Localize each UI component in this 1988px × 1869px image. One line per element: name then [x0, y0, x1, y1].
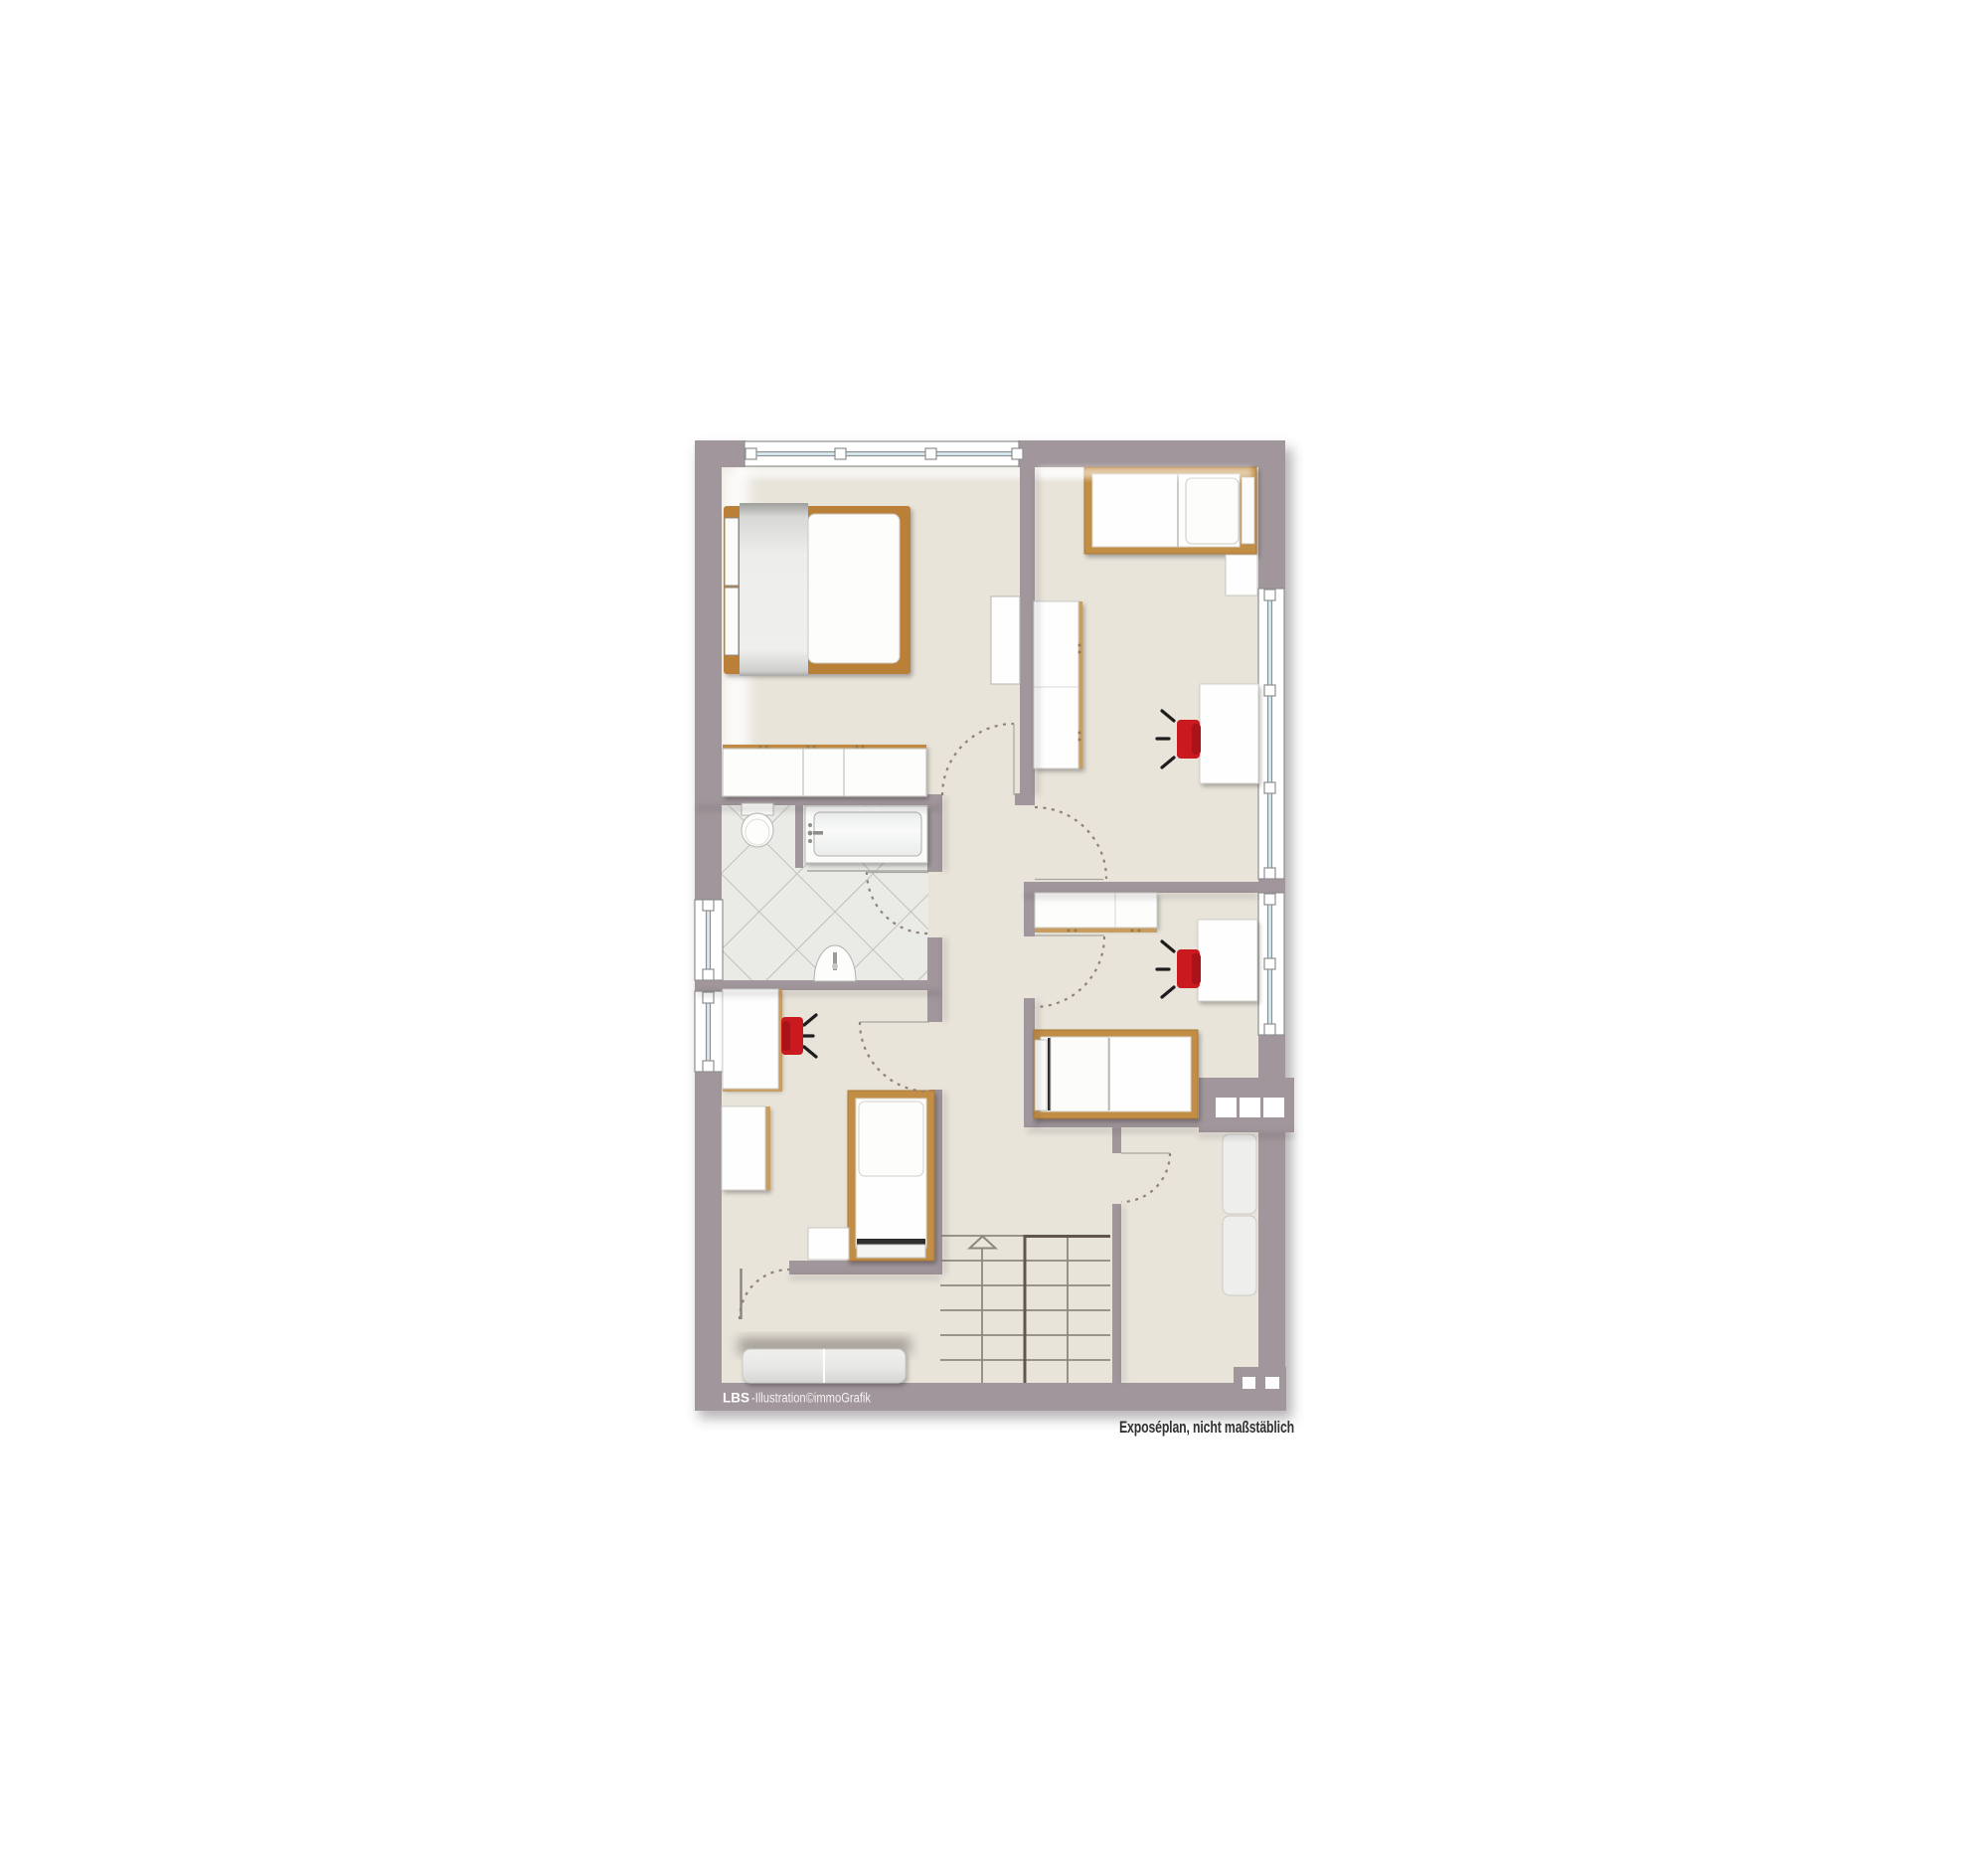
svg-text:Exposéplan, nicht maßstäblich: Exposéplan, nicht maßstäblich	[1119, 1419, 1294, 1437]
svg-text:LBS: LBS	[723, 1391, 749, 1406]
svg-text:-Illustration©immoGrafik: -Illustration©immoGrafik	[751, 1391, 871, 1406]
